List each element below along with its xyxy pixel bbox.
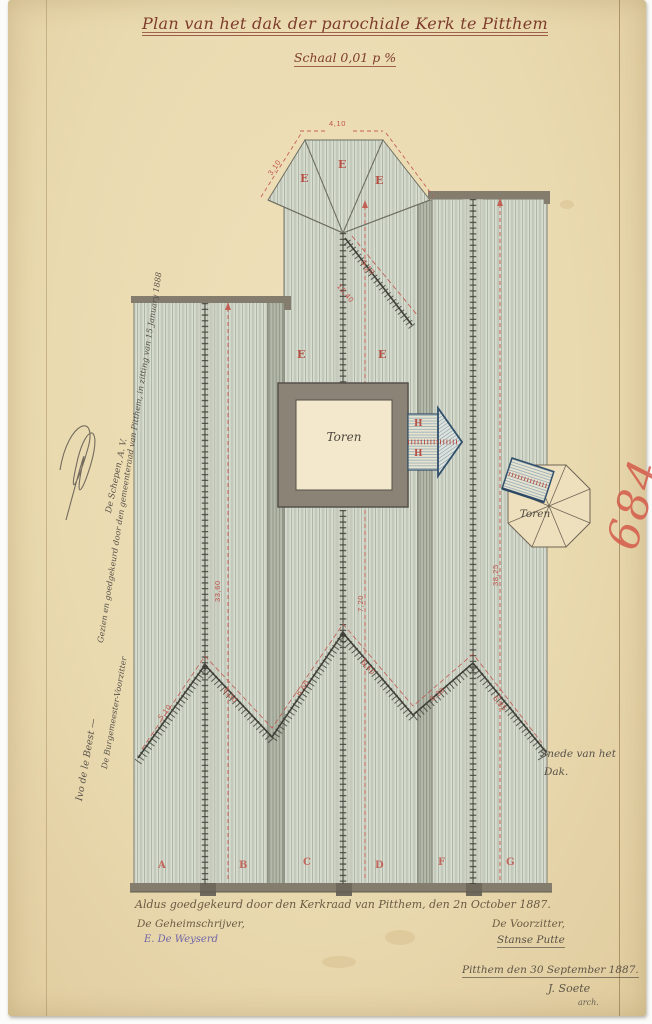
dim-center-ridge: 7,20 (356, 595, 365, 612)
section-note-line1: Snede van het (540, 748, 616, 760)
nave-letter-E: E (297, 348, 305, 361)
scale-note-text: Schaal 0,01 p % (294, 50, 396, 67)
bay-letter-F: F (438, 857, 445, 868)
drawing-title-text: Plan van het dak der parochiale Kerk te … (142, 14, 548, 36)
dim-w-arm-6: 6,35 (491, 694, 509, 713)
architect-signature: J. Soete (548, 982, 590, 995)
facet-letter-E: E (338, 158, 346, 171)
dormer-letter-H: H (414, 449, 423, 459)
dim-w-arm-4: 6,60 (359, 658, 377, 677)
dim-w-arm-1: 5,10 (156, 703, 174, 722)
nave-letter-E: E (378, 348, 386, 361)
dim-w-arm-5: 6,30 (428, 685, 447, 703)
dim-valley-lower: 10,40 (335, 282, 356, 304)
dim-apse-slope: 3,10 (266, 158, 283, 177)
scanned-roof-plan: Plan van het dak der parochiale Kerk te … (0, 0, 652, 1024)
dim-w-arm-3: 6,60 (294, 678, 311, 697)
bay-letter-B: B (239, 860, 247, 871)
drawing-title: Plan van het dak der parochiale Kerk te … (110, 14, 580, 36)
dim-w-arm-2: 6,30 (221, 686, 239, 705)
bay-letter-D: D (375, 860, 384, 871)
text-layer: Plan van het dak der parochiale Kerk te … (0, 0, 652, 1024)
archive-number: 684 (597, 452, 652, 555)
dormer-letter-H: H (414, 419, 423, 429)
chairman-signature: Stanse Putte (497, 934, 565, 948)
facet-letter-E: E (375, 174, 383, 187)
secretary-title: De Geheimschrijver, (137, 918, 245, 930)
margin-mayor-signature: Ivo de le Beest — (74, 718, 99, 802)
approval-statement: Aldus goedgekeurd door den Kerkraad van … (135, 898, 551, 911)
side-tower-label: Toren (505, 508, 565, 520)
bay-letter-A: A (158, 860, 166, 871)
architect-role: arch. (578, 998, 599, 1007)
chairman-title: De Voorzitter, (492, 918, 565, 930)
secretary-signature: E. De Weyserd (144, 934, 218, 945)
scale-note: Schaal 0,01 p % (110, 50, 580, 67)
section-note-line2: Dak. (544, 766, 568, 778)
dim-valley-upper: 6,10 (359, 258, 377, 277)
place-date: Pitthem den 30 September 1887. (462, 964, 639, 978)
dim-apse-top: 4,10 (329, 119, 346, 128)
tower-label: Toren (296, 430, 392, 444)
dim-left-ridge: 33,60 (213, 580, 222, 602)
margin-approval-line: Gezien en goedgekeurd door den gemeenter… (96, 272, 164, 644)
bay-letter-G: G (506, 857, 515, 868)
bay-letter-C: C (303, 857, 311, 868)
margin-mayor-line: De Burgemeester-Voorzitter (100, 656, 129, 770)
facet-letter-E: E (300, 172, 308, 185)
dim-right-ridge: 38,25 (491, 564, 500, 586)
